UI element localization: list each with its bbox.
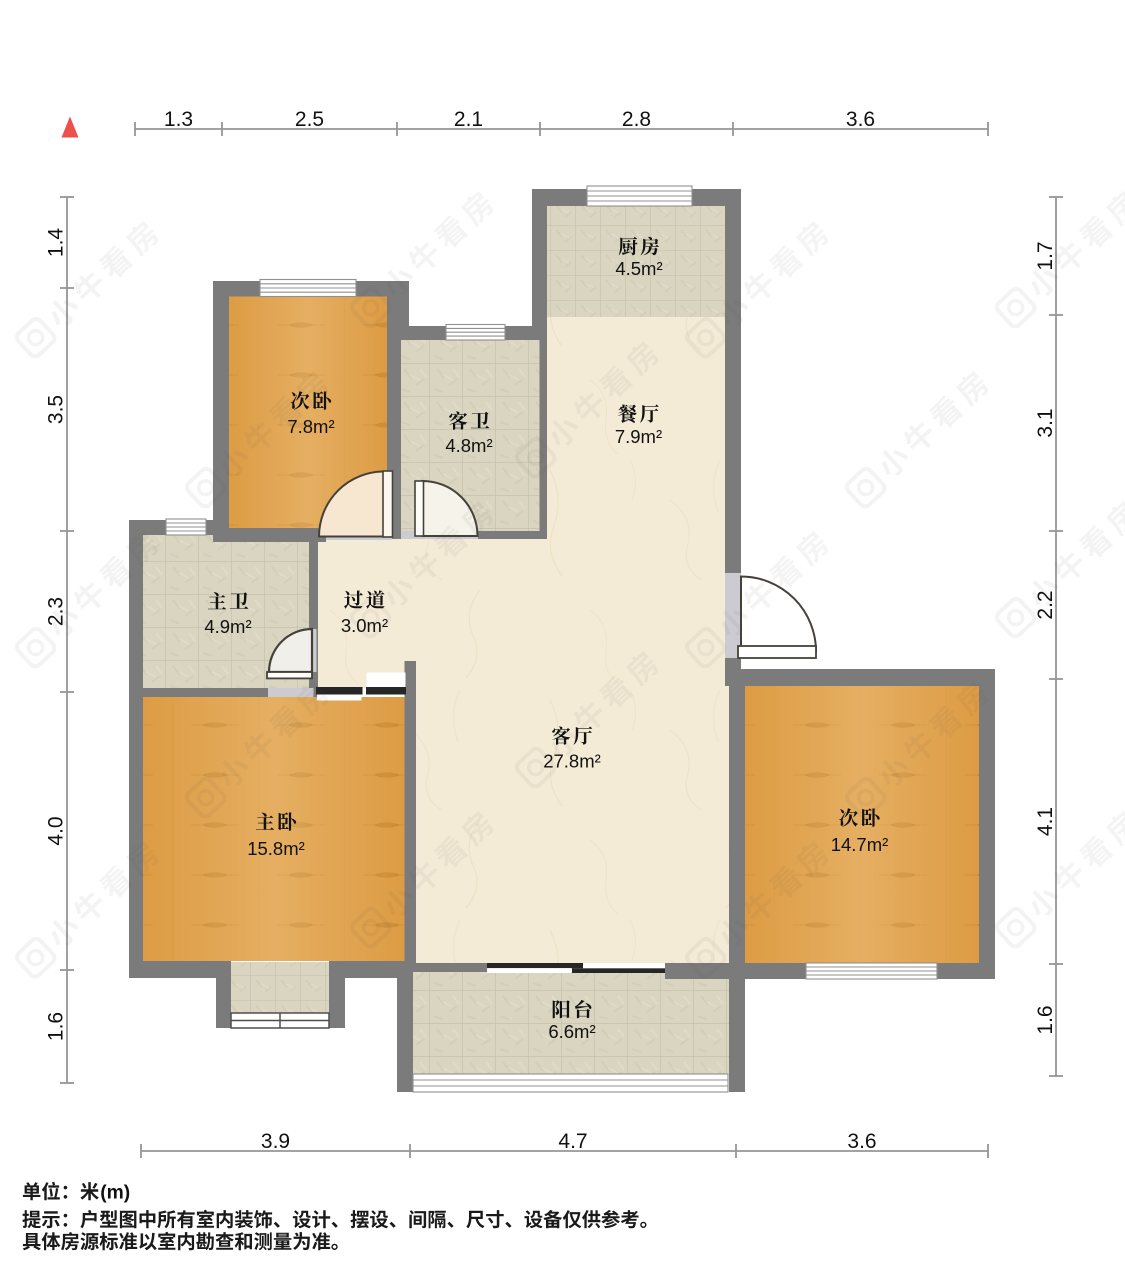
svg-text:4.9m²: 4.9m² bbox=[204, 616, 251, 637]
svg-text:7.9m²: 7.9m² bbox=[615, 426, 662, 447]
svg-text:4.7: 4.7 bbox=[558, 1130, 587, 1153]
svg-text:1.3: 1.3 bbox=[164, 108, 193, 131]
svg-text:6.6m²: 6.6m² bbox=[548, 1021, 595, 1042]
svg-text:3.6: 3.6 bbox=[847, 1130, 876, 1153]
svg-text:1.7: 1.7 bbox=[1034, 241, 1057, 270]
svg-text:2.5: 2.5 bbox=[295, 108, 324, 131]
svg-text:3.5: 3.5 bbox=[45, 395, 68, 424]
svg-text:2.8: 2.8 bbox=[622, 108, 651, 131]
svg-text:1.6: 1.6 bbox=[1034, 1005, 1057, 1034]
svg-text:3.9: 3.9 bbox=[261, 1130, 290, 1153]
svg-text:4.1: 4.1 bbox=[1034, 807, 1057, 836]
svg-text:3.1: 3.1 bbox=[1034, 408, 1057, 437]
svg-text:1.6: 1.6 bbox=[45, 1012, 68, 1041]
svg-text:1.4: 1.4 bbox=[45, 228, 68, 258]
svg-text:4.8m²: 4.8m² bbox=[445, 435, 492, 456]
svg-text:3.6: 3.6 bbox=[846, 108, 875, 131]
svg-text:4.0: 4.0 bbox=[45, 816, 68, 845]
svg-text:2.1: 2.1 bbox=[454, 108, 483, 131]
svg-text:14.7m²: 14.7m² bbox=[831, 834, 889, 855]
svg-text:(m): (m) bbox=[100, 1183, 130, 1204]
svg-text:4.5m²: 4.5m² bbox=[615, 258, 662, 279]
svg-text:15.8m²: 15.8m² bbox=[247, 838, 305, 859]
